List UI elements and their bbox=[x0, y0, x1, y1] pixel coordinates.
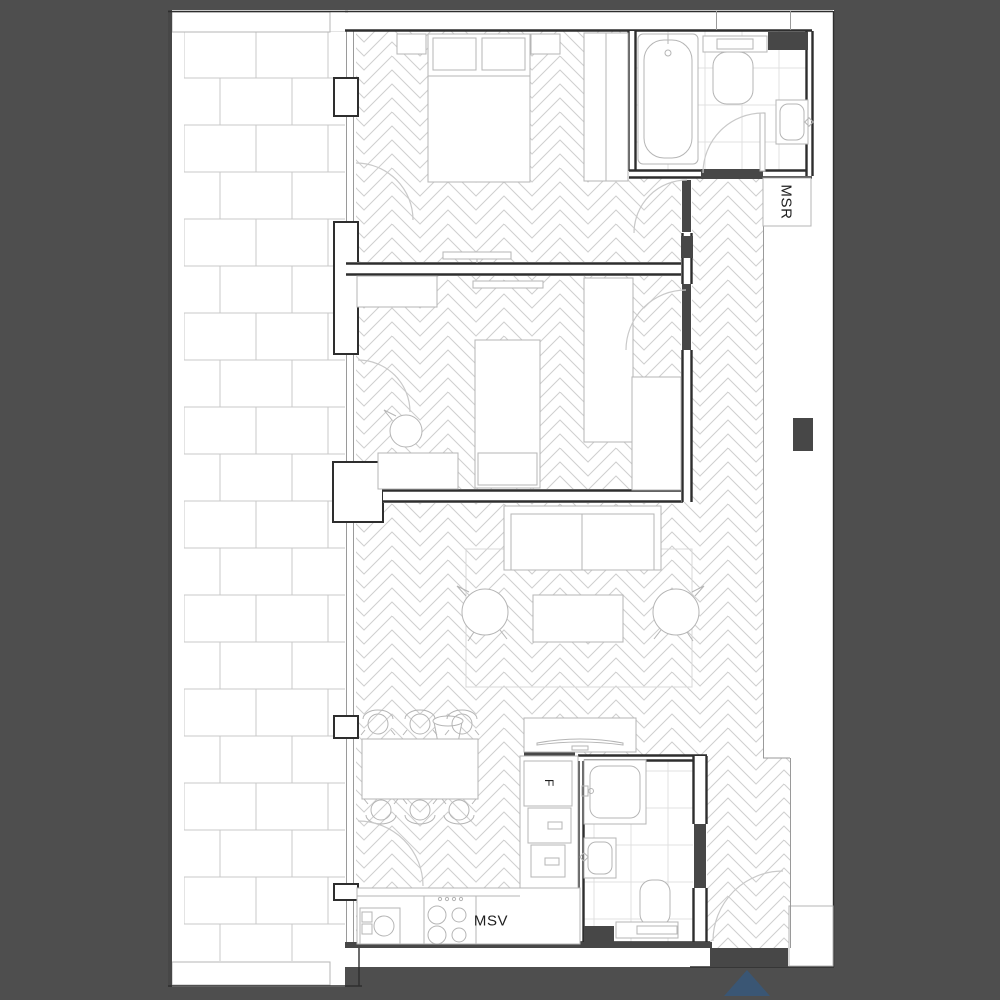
wall-pier bbox=[334, 78, 358, 116]
tv-console bbox=[524, 718, 636, 752]
shelf-unit bbox=[357, 276, 437, 307]
balcony-brick-floor bbox=[184, 31, 345, 961]
nightstand bbox=[531, 34, 560, 54]
shaft-msr: MSR bbox=[763, 178, 811, 226]
pillow bbox=[482, 38, 525, 70]
pillow bbox=[433, 38, 476, 70]
kitchen-label-msv: MSV bbox=[474, 913, 508, 930]
toilet bbox=[713, 52, 753, 104]
closet-column bbox=[584, 278, 633, 442]
structural-column bbox=[333, 462, 383, 522]
wall-pier bbox=[334, 884, 358, 900]
bedroom-1-door-leaf bbox=[682, 180, 691, 232]
nightstand bbox=[397, 34, 426, 54]
wall-tv bbox=[473, 281, 543, 288]
washbasin bbox=[584, 838, 616, 878]
balcony-planter-bottom bbox=[172, 962, 330, 985]
wall-pier bbox=[334, 222, 358, 354]
bathroom-2-door-leaf bbox=[694, 824, 706, 888]
right-wall-block bbox=[793, 418, 813, 451]
washbasin bbox=[776, 100, 808, 144]
entrance-threshold bbox=[710, 948, 788, 967]
bath-dark-unit bbox=[584, 926, 614, 942]
toilet-cistern bbox=[703, 36, 767, 52]
entrance-arrow-icon bbox=[724, 970, 770, 996]
herringbone-floor-entry bbox=[763, 758, 790, 948]
desk bbox=[378, 453, 458, 489]
armchair-left bbox=[462, 589, 508, 635]
door-leaf bbox=[760, 113, 765, 171]
coffee-table bbox=[533, 595, 623, 642]
wall-tv bbox=[443, 252, 511, 259]
bathroom-1-threshold bbox=[701, 169, 763, 179]
floor-plan: MSR bbox=[0, 0, 1000, 1000]
bedroom-2-door-leaf bbox=[682, 284, 691, 350]
wall-pier bbox=[334, 716, 358, 738]
balcony-planter-top bbox=[172, 12, 330, 32]
bath-cabinet bbox=[768, 32, 808, 50]
fridge-label: F bbox=[542, 779, 556, 787]
desk-chair bbox=[390, 415, 422, 447]
armchair-right bbox=[653, 589, 699, 635]
dining-table bbox=[362, 739, 478, 799]
toilet bbox=[640, 880, 670, 926]
entry-column bbox=[789, 906, 833, 966]
wardrobe bbox=[632, 377, 681, 490]
shaft-label-msr: MSR bbox=[778, 184, 795, 219]
door-jamb bbox=[681, 236, 693, 258]
toilet-shelf bbox=[616, 922, 678, 938]
bed-blanket bbox=[478, 453, 537, 485]
balcony-outer-wall bbox=[168, 10, 172, 987]
bathtub bbox=[638, 34, 698, 164]
floor-plan-canvas: MSR bbox=[0, 0, 1000, 1000]
